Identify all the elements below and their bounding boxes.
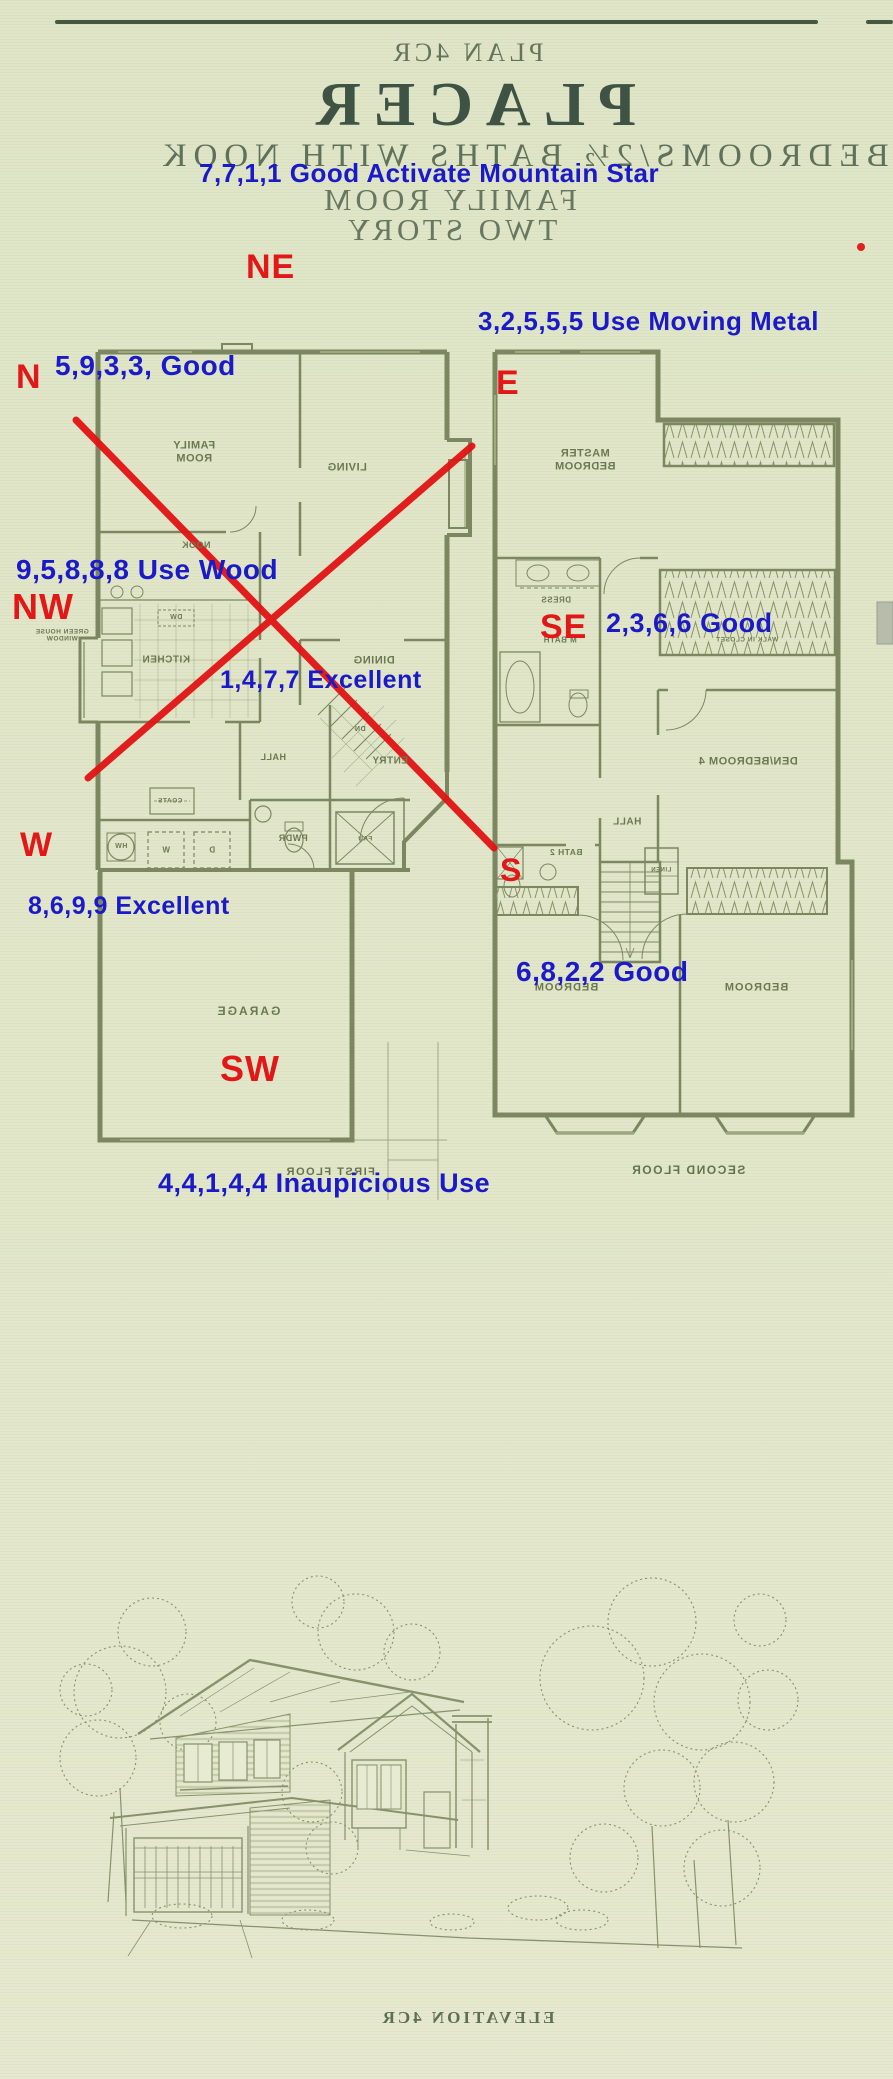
direction-e: E [496,364,520,403]
elevation-caption: ELEVATION 4CR [380,2008,555,2028]
room-label-fau: FAU [358,835,373,842]
annotation-2366-good: 2,3,6,6 Good [606,608,773,639]
annotation-moving-metal: 3,2,5,5,5 Use Moving Metal [478,306,819,337]
room-label-family-room: FAMILY ROOM [173,439,215,464]
room-label-bedroom-right: BEDROOM [724,982,788,995]
direction-nw: NW [12,586,74,628]
second-floor-plan [495,352,852,1133]
room-label-hall-f1: HALL [260,752,286,762]
annotation-inauspicious: 4,4,1,4,4 Inaupicious Use [158,1168,490,1199]
direction-w: W [20,826,53,865]
second-floor-caption: SECOND FLOOR [631,1163,746,1177]
room-label-bath2: BATH 2 [549,848,582,858]
room-label-kitchen: KITCHEN [142,654,190,666]
scanned-floorplan-page: PLAN 4CR PLACER 4 BEDROOMS/2½ BATHS WITH… [0,0,893,2079]
room-label-hall-f2: HALL [613,816,642,828]
room-label-nook: NOOK [182,540,211,550]
room-label-dw: DW [170,614,183,622]
annotation-5933-good: 5,9,3,3, Good [55,350,236,382]
direction-n: N [16,358,42,397]
direction-se: SE [540,608,587,647]
room-label-pwdr: PWDR [278,833,308,843]
room-label-washer: W [162,845,170,854]
room-label-master-bedroom: MASTER BEDROOM [555,447,616,472]
room-label-coats: COATS [158,797,183,804]
elevation-sketch [60,1576,798,1958]
room-label-dn: DN [354,726,365,734]
annotation-1477-excellent: 1,4,7,7 Excellent [220,666,422,695]
scan-edge-tab [877,602,893,644]
room-label-dress: DRESS [541,595,571,604]
room-label-den-bedroom4: DEN/BEDROOM 4 [698,756,797,769]
annotation-mountain-star: 7,7,1,1 Good Activate Mountain Star [199,158,659,189]
annotation-use-wood: 9,5,8,8,8 Use Wood [16,554,278,586]
room-label-entry: ENTRY [372,755,408,767]
room-label-greenhouse-window: GREEN HOUSE WINDOW [35,629,89,644]
room-label-garage: GARAGE [216,1005,281,1019]
direction-sw: SW [220,1048,280,1090]
room-label-hw: HW [115,843,128,851]
red-mark [857,243,865,251]
annotation-6822-good: 6,8,2,2 Good [516,956,689,988]
tree-foliage [60,1576,798,1930]
direction-ne: NE [246,248,295,287]
room-label-linen: LINEN [651,868,672,875]
direction-s: S [500,852,522,889]
room-label-dryer: D [209,845,215,854]
room-label-living: LIVING [327,462,367,475]
annotation-8699-excellent: 8,6,9,9 Excellent [28,892,230,921]
